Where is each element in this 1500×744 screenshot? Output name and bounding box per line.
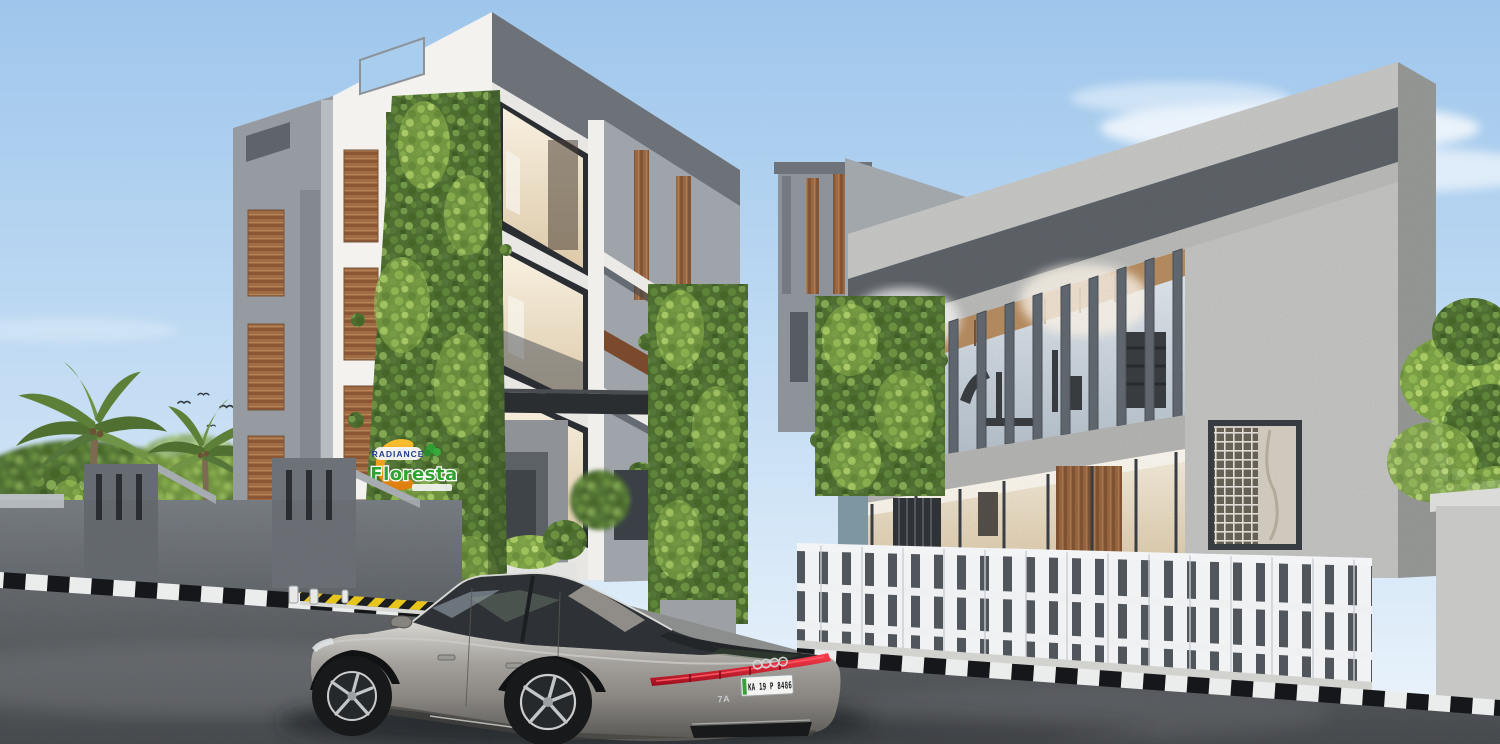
license-plate: KA 19 P 8486 <box>741 675 794 697</box>
license-plate-text: KA 19 P 8486 <box>748 680 793 693</box>
logo-brand-text: RADIANCE <box>372 449 425 459</box>
logo-tagline-bar <box>412 484 452 491</box>
slat-gate <box>893 498 941 554</box>
gate-pillar-green <box>648 284 748 634</box>
logo-name-text: Floresta <box>370 464 457 485</box>
planter-wall-right <box>1430 488 1500 702</box>
car-door-handle <box>438 655 455 660</box>
entry-pillar <box>838 496 868 552</box>
render-scene: RADIANCE Floresta <box>0 0 1500 744</box>
car-model-badge: 7A <box>717 694 730 705</box>
car-mirror <box>391 616 412 628</box>
